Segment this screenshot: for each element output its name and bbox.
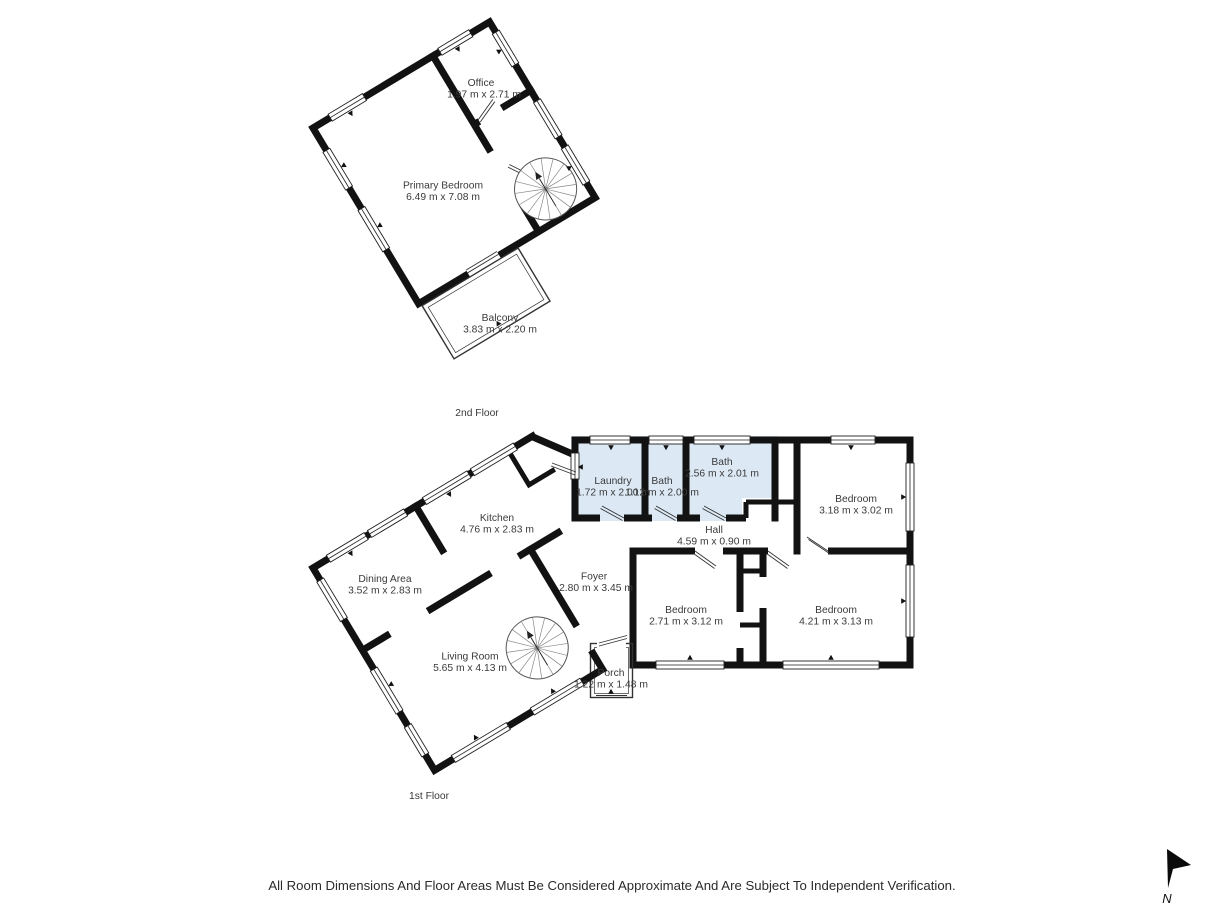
- room-label-dining-area: Dining Area 3.52 m x 2.83 m: [348, 574, 422, 597]
- room-label-bedroom-top-right: Bedroom 3.18 m x 3.02 m: [819, 494, 893, 517]
- office-dims: 1.97 m x 2.71 m: [447, 90, 521, 101]
- bath-small-dims: 1.12 m x 2.00 m: [625, 488, 699, 499]
- room-label-kitchen: Kitchen 4.76 m x 2.83 m: [460, 513, 534, 536]
- laundry-name: Laundry: [594, 476, 632, 487]
- primary-bedroom-name: Primary Bedroom: [403, 181, 483, 192]
- bedroom-bl-dims: 2.71 m x 3.12 m: [649, 617, 723, 628]
- second-floor-plan: Office 1.97 m x 2.71 m Primary Bedroom 6…: [308, 16, 633, 419]
- disclaimer-text: All Room Dimensions And Floor Areas Must…: [268, 878, 955, 893]
- second-floor-windows: [308, 16, 590, 291]
- dining-area-dims: 3.52 m x 2.83 m: [348, 586, 422, 597]
- porch-dims: 1.22 m x 1.48 m: [574, 680, 648, 691]
- room-label-foyer: Foyer 2.80 m x 3.45 m: [559, 572, 633, 595]
- compass: N: [1162, 849, 1191, 906]
- foyer-dims: 2.80 m x 3.45 m: [559, 583, 633, 594]
- balcony-dims: 3.83 m x 2.20 m: [463, 325, 537, 336]
- room-label-bedroom-bottom-right: Bedroom 4.21 m x 3.13 m: [799, 605, 873, 628]
- floor-plan-page: Office 1.97 m x 2.71 m Primary Bedroom 6…: [0, 0, 1224, 918]
- room-label-primary-bedroom: Primary Bedroom 6.49 m x 7.08 m: [403, 181, 483, 204]
- bedroom-br-dims: 4.21 m x 3.13 m: [799, 617, 873, 628]
- bath-dims: 2.56 m x 2.01 m: [685, 469, 759, 480]
- dining-area-name: Dining Area: [358, 574, 412, 585]
- first-floor-label: 1st Floor: [409, 791, 450, 802]
- room-label-living-room: Living Room 5.65 m x 4.13 m: [433, 652, 507, 675]
- kitchen-name: Kitchen: [480, 513, 515, 524]
- living-room-dims: 5.65 m x 4.13 m: [433, 663, 507, 674]
- balcony-name: Balcony: [482, 313, 519, 324]
- porch-name: Porch: [598, 668, 625, 679]
- foyer-name: Foyer: [581, 572, 608, 583]
- bedroom-tr-door: [807, 537, 830, 554]
- north-arrow-icon: [1167, 849, 1191, 888]
- office-name: Office: [468, 78, 495, 89]
- first-floor-plan: Laundry 1.72 m x 2.00 m Bath 1.12 m x 2.…: [308, 431, 914, 802]
- floor-plan-drawing: Office 1.97 m x 2.71 m Primary Bedroom 6…: [0, 0, 1224, 918]
- second-floor-label: 2nd Floor: [455, 408, 499, 419]
- room-label-bedroom-bottom-left: Bedroom 2.71 m x 3.12 m: [649, 605, 723, 628]
- spiral-stair-1f: [495, 605, 580, 690]
- bedroom-tr-name: Bedroom: [835, 494, 877, 505]
- primary-bedroom-dims: 6.49 m x 7.08 m: [406, 192, 480, 203]
- hall-name: Hall: [705, 525, 723, 536]
- living-room-name: Living Room: [441, 652, 498, 663]
- balcony-structure: [418, 241, 550, 359]
- room-label-hall: Hall 4.59 m x 0.90 m: [677, 525, 751, 548]
- bedroom-bl-door: [694, 551, 717, 569]
- bedroom-br-name: Bedroom: [815, 605, 857, 616]
- room-label-office: Office 1.97 m x 2.71 m: [447, 78, 521, 101]
- north-label: N: [1162, 891, 1172, 906]
- room-label-porch: Porch 1.22 m x 1.48 m: [574, 668, 648, 691]
- hall-dims: 4.59 m x 0.90 m: [677, 537, 751, 548]
- bedroom-bl-name: Bedroom: [665, 605, 707, 616]
- kitchen-dims: 4.76 m x 2.83 m: [460, 525, 534, 536]
- bedroom-br-door: [767, 551, 790, 569]
- bath-name: Bath: [711, 457, 732, 468]
- bath-small-name: Bath: [651, 476, 672, 487]
- bedroom-tr-dims: 3.18 m x 3.02 m: [819, 506, 893, 517]
